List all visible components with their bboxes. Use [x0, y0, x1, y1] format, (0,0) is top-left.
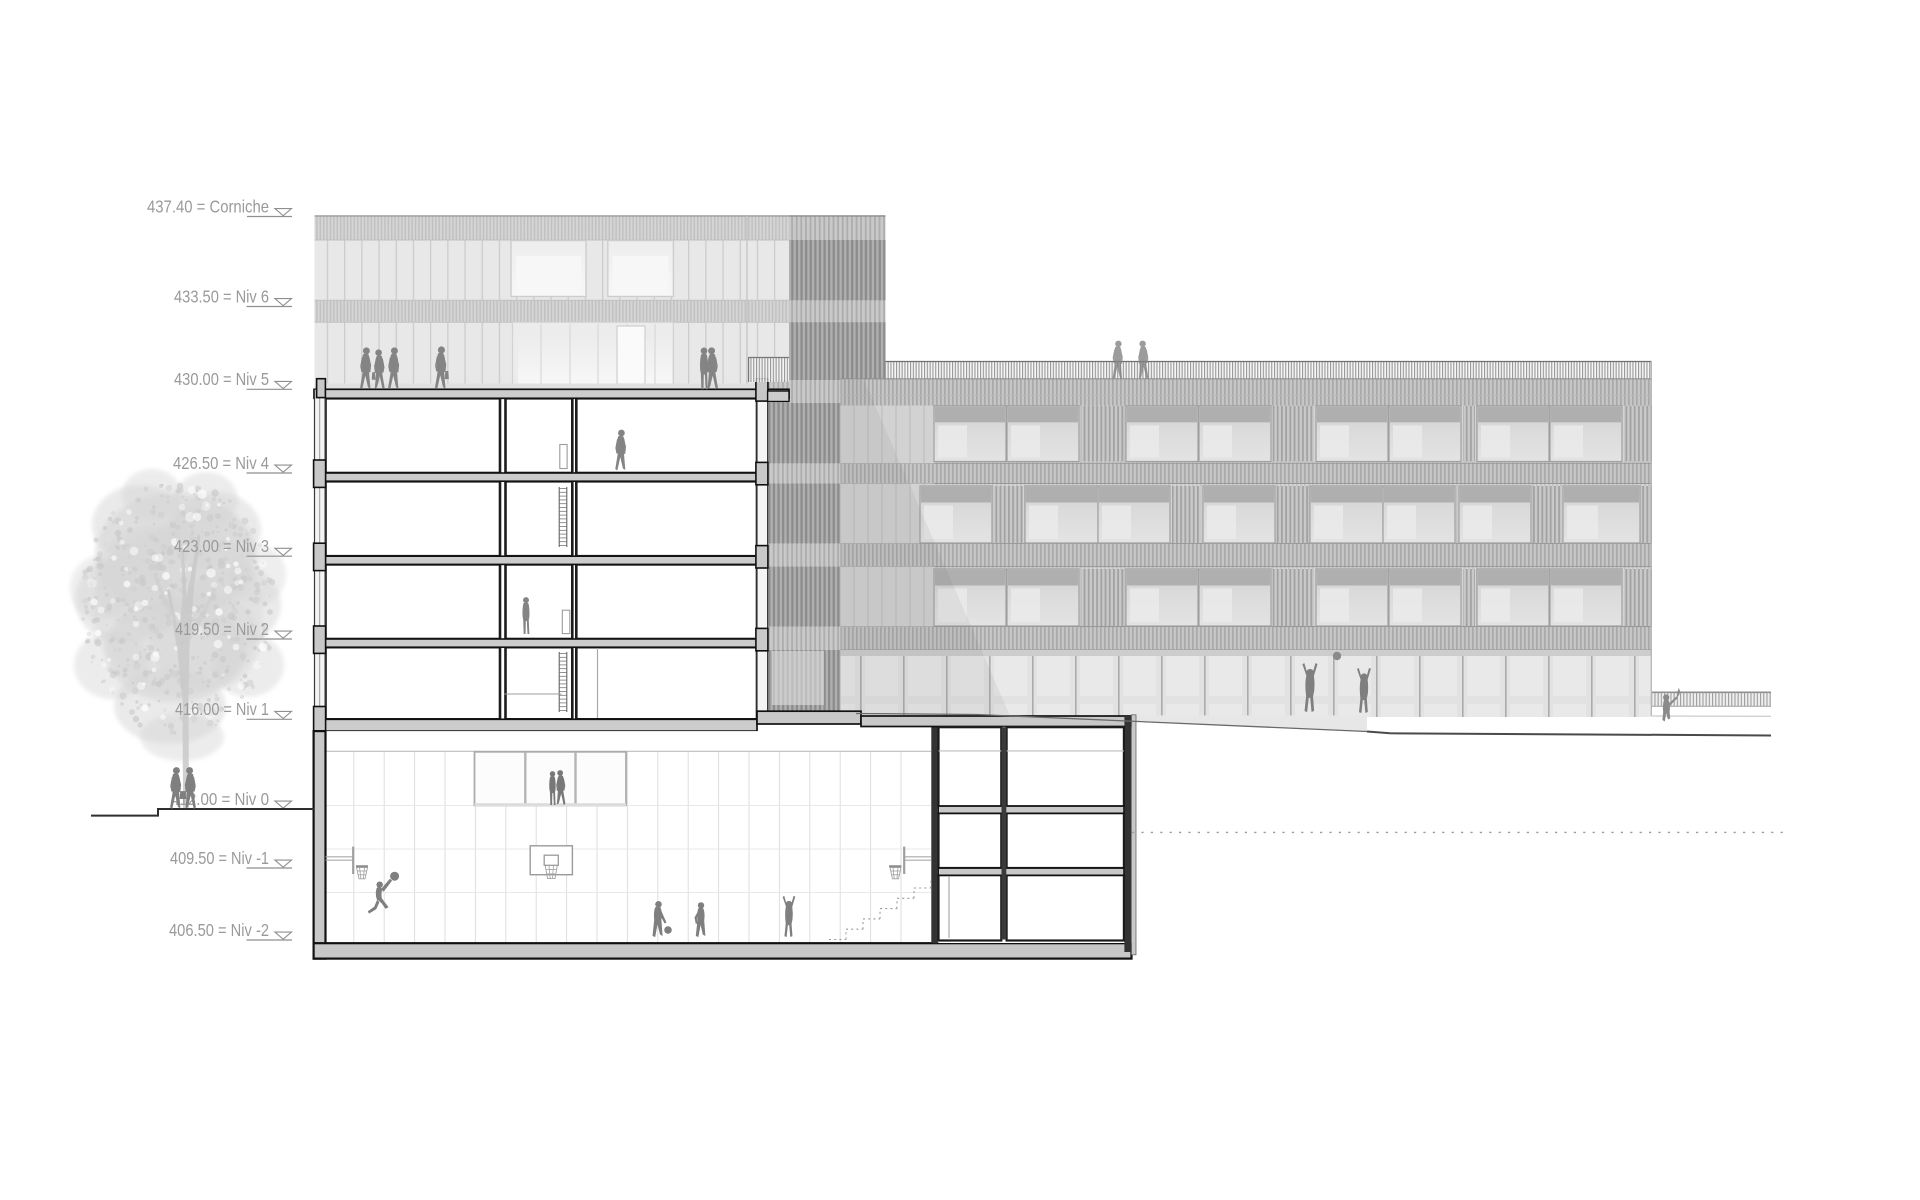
- svg-text:430.00 = Niv 5: 430.00 = Niv 5: [174, 369, 269, 389]
- svg-text:437.40 = Corniche: 437.40 = Corniche: [147, 196, 269, 216]
- svg-text:419.50 = Niv 2: 419.50 = Niv 2: [175, 619, 269, 639]
- svg-text:426.50 = Niv 4: 426.50 = Niv 4: [173, 453, 269, 473]
- svg-text:433.50 = Niv 6: 433.50 = Niv 6: [174, 286, 269, 306]
- svg-text:423.00 = Niv 3: 423.00 = Niv 3: [174, 536, 269, 556]
- svg-text:409.50 = Niv -1: 409.50 = Niv -1: [170, 848, 269, 868]
- svg-text:406.50 = Niv -2: 406.50 = Niv -2: [169, 920, 269, 940]
- svg-text:416.00 = Niv 1: 416.00 = Niv 1: [175, 699, 269, 719]
